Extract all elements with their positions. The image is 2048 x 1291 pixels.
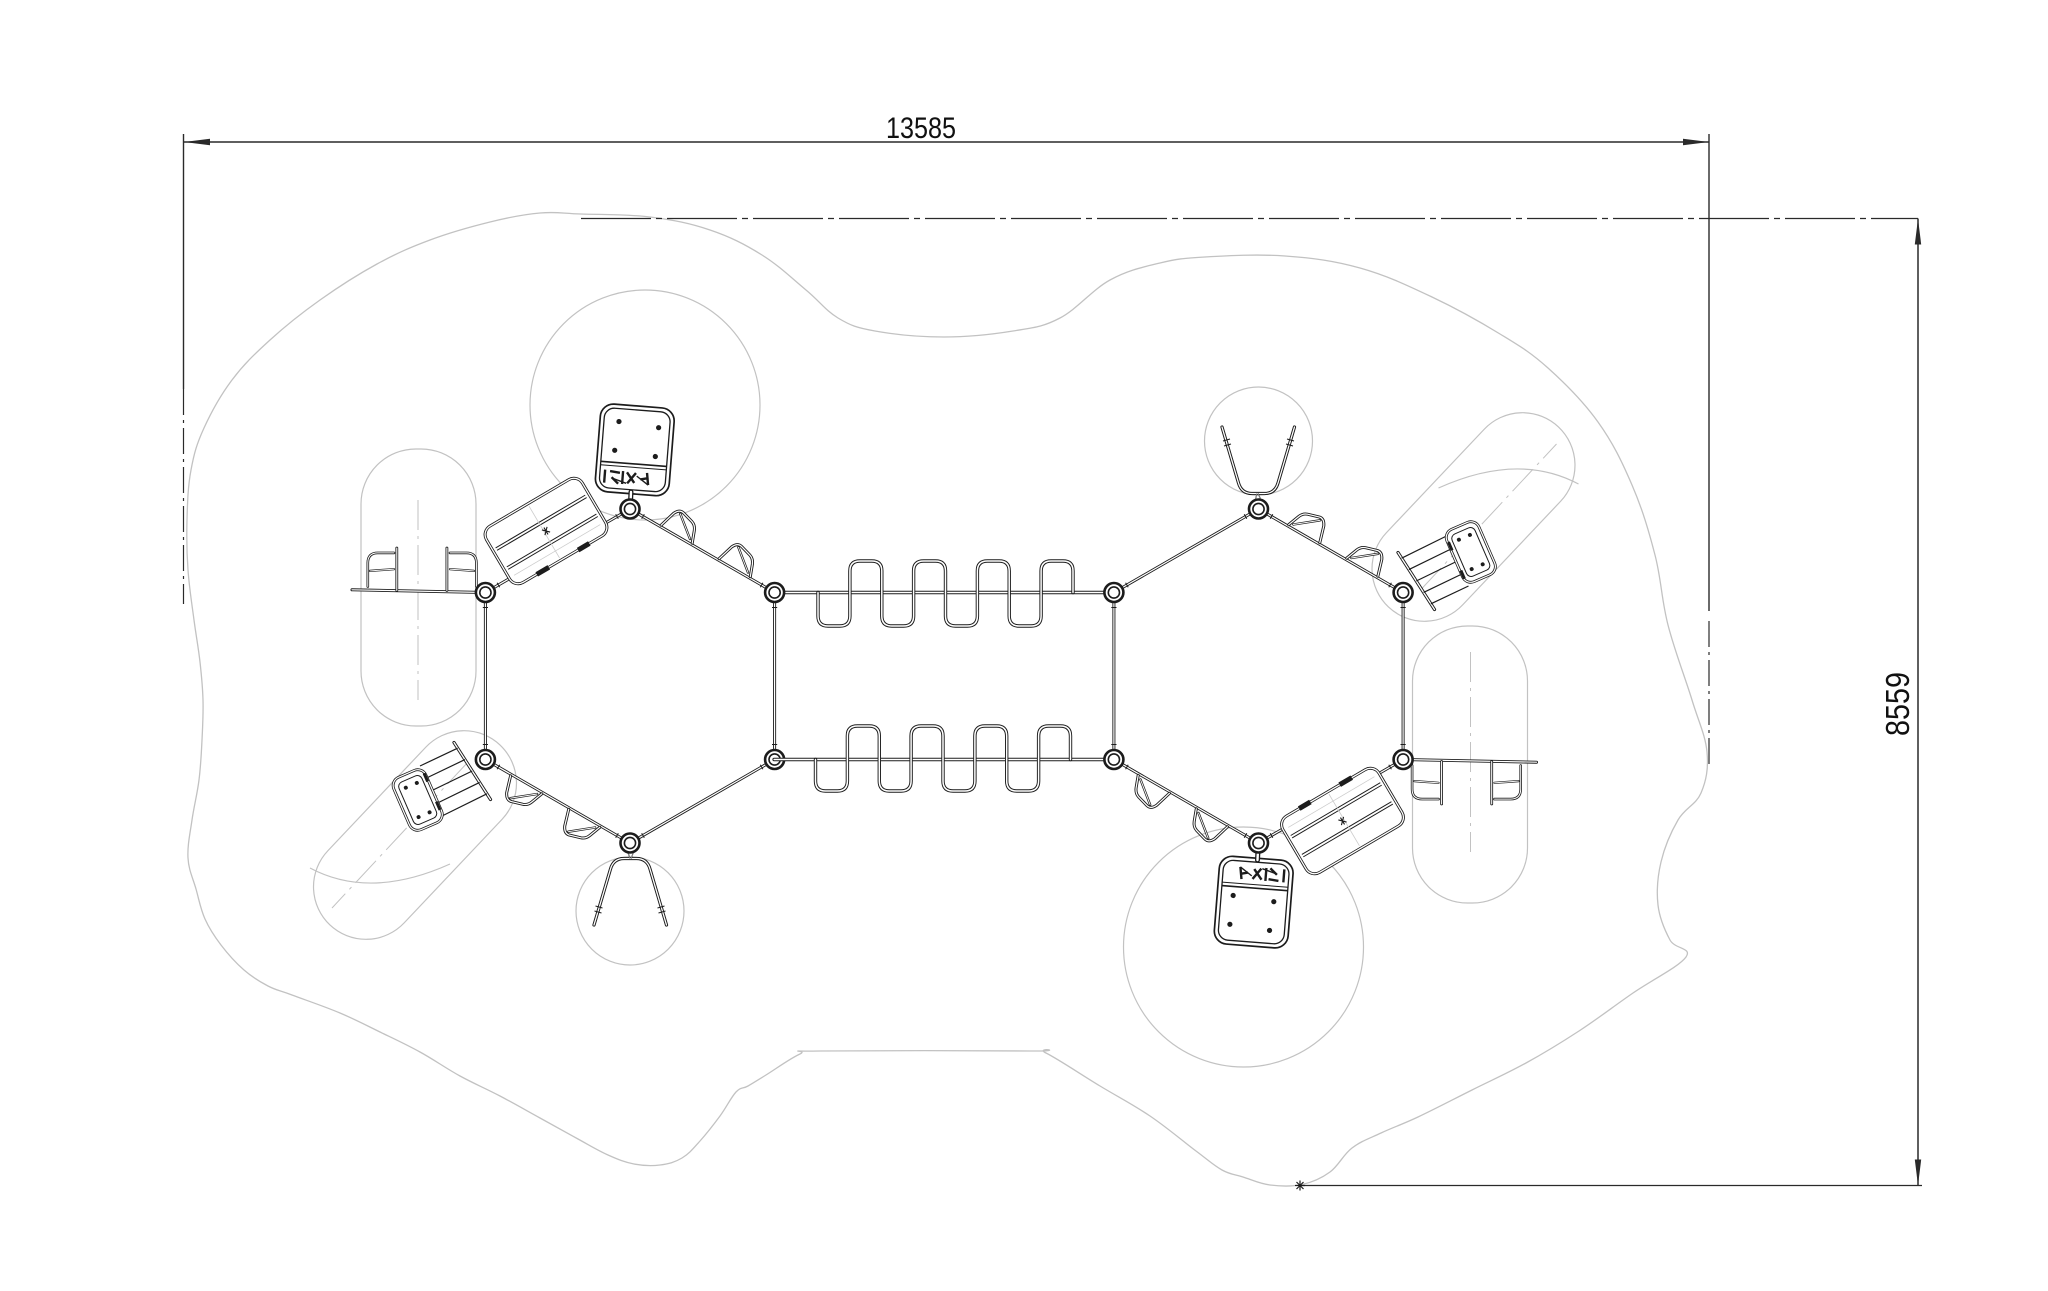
svg-text:8559: 8559 <box>1879 672 1916 736</box>
svg-text:13585: 13585 <box>886 112 956 145</box>
